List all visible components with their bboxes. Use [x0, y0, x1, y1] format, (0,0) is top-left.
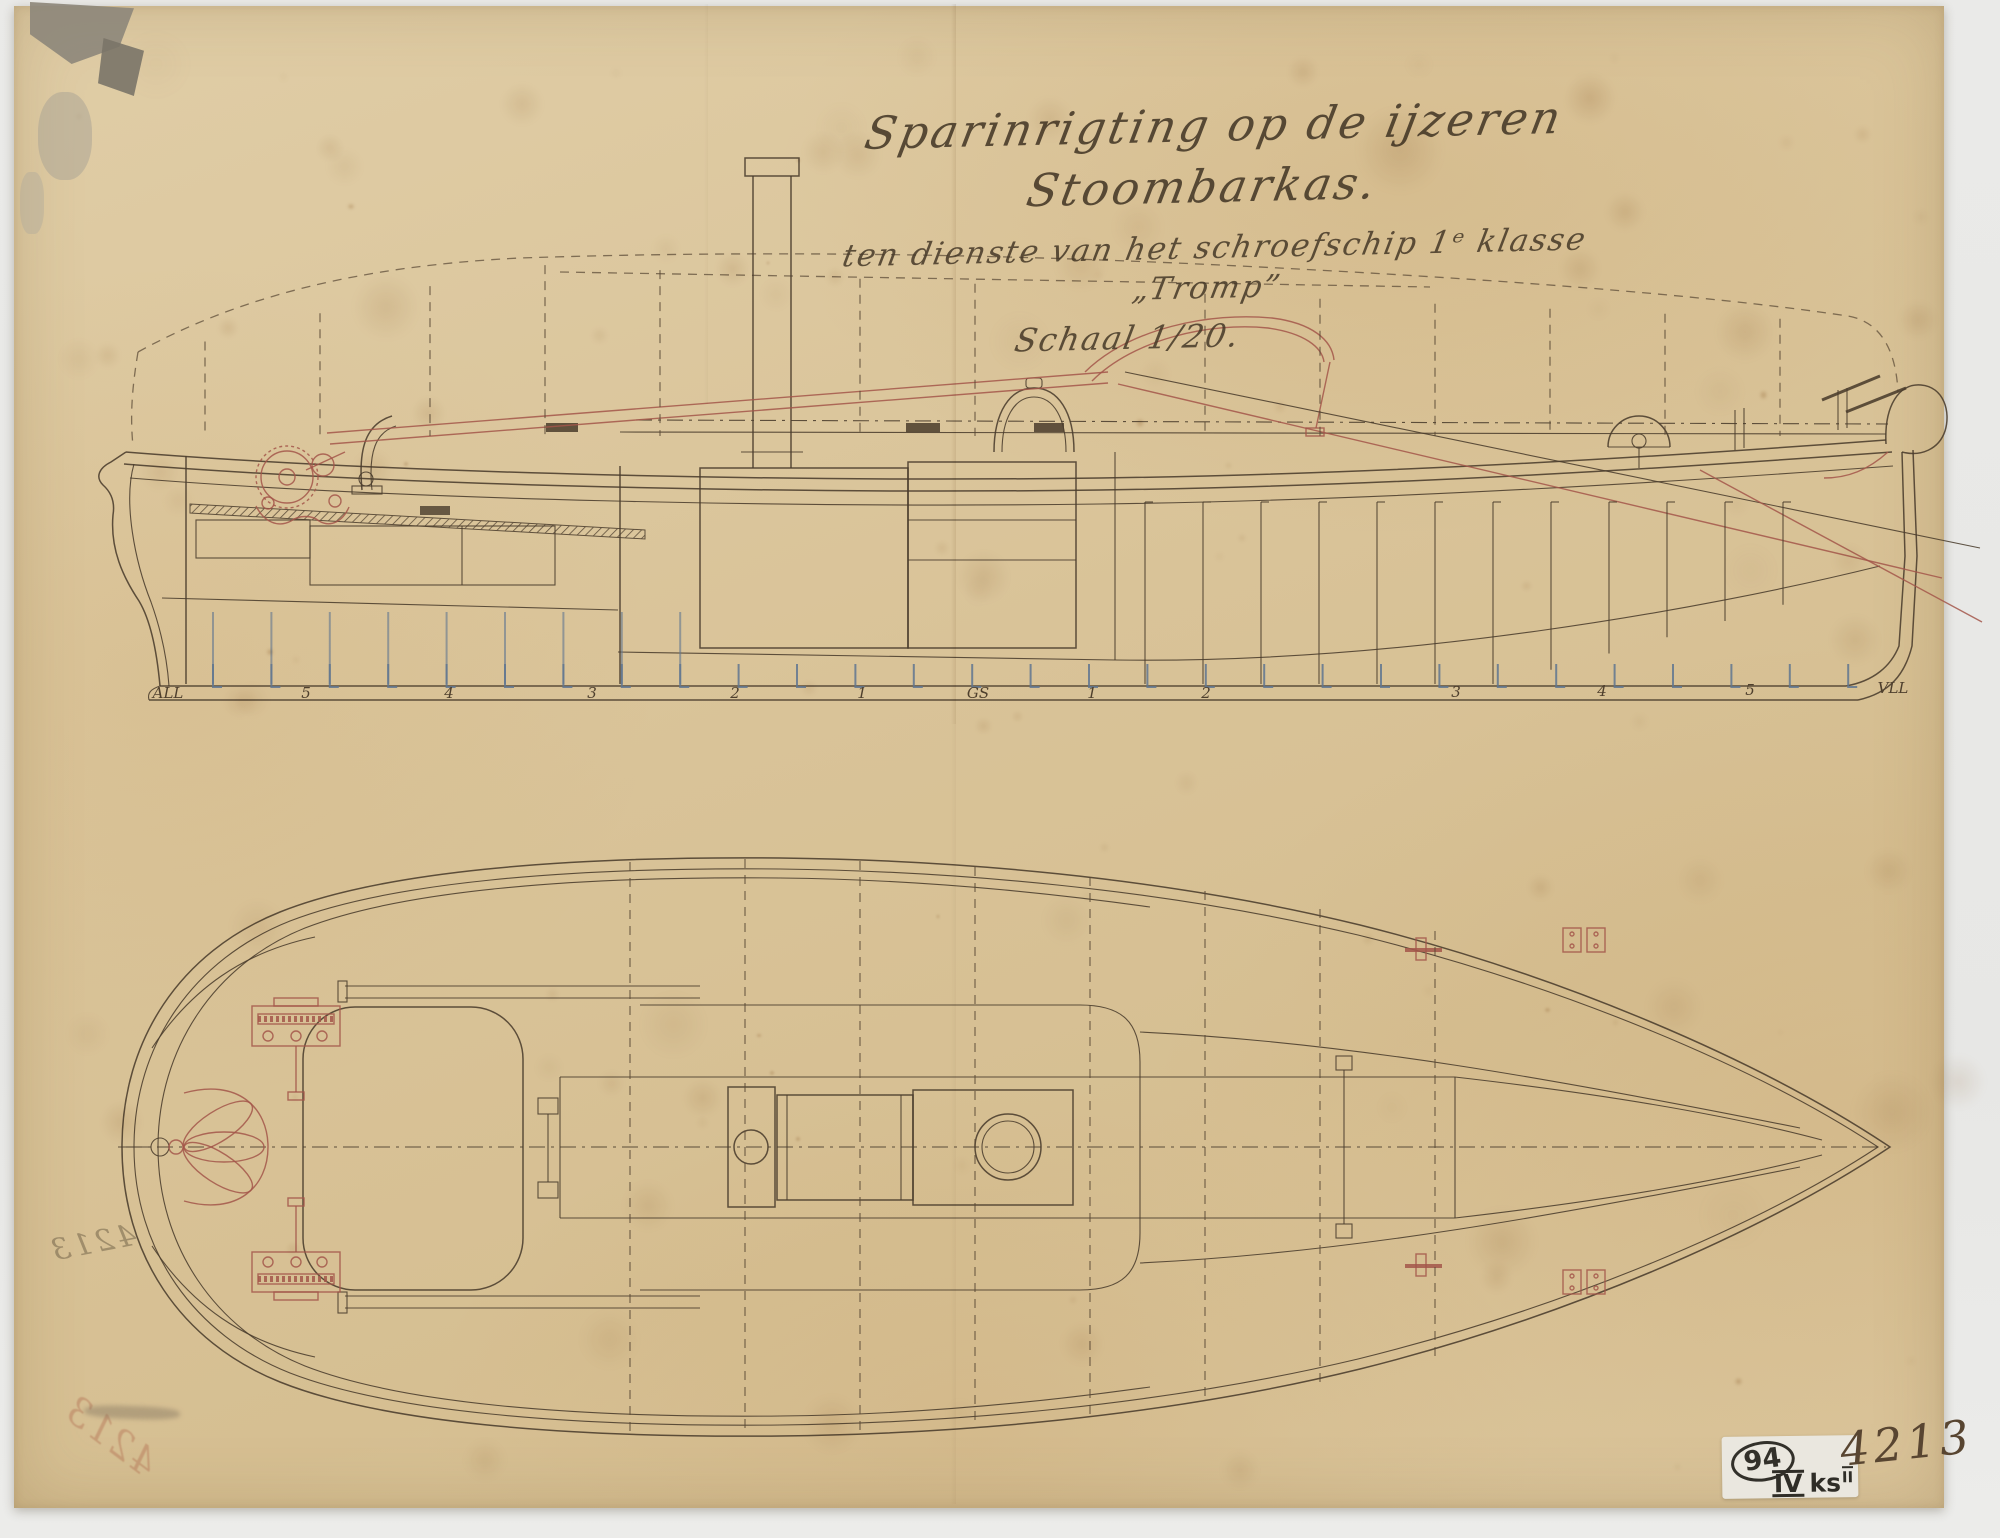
stern-spar	[1125, 372, 1980, 548]
plan-winch-fore	[252, 998, 340, 1100]
archive-classmark: IV ksII	[1772, 1464, 1854, 1497]
station-label: 4	[443, 684, 454, 702]
station-label: 4	[1596, 682, 1607, 700]
station-label: 5	[301, 684, 311, 702]
boiler-casing	[700, 468, 908, 648]
stem-profile	[99, 452, 160, 686]
deck-cleat	[906, 423, 940, 432]
stern-posts	[1735, 376, 1906, 450]
plan-top-view	[118, 858, 1890, 1436]
station-label: 3	[587, 684, 597, 702]
station-label: 2	[1200, 684, 1211, 702]
hull-sheer-line	[126, 440, 1886, 479]
fore-locker	[196, 520, 310, 558]
plan-winch-aft	[252, 1198, 340, 1300]
station-label: 5	[1745, 681, 1755, 699]
station-label: 1	[857, 684, 867, 702]
station-label: GS	[967, 684, 989, 702]
title-block: Sparinrigting op de ijzeren Stoombarkas.…	[757, 86, 1663, 368]
stowed-spar	[327, 372, 1108, 433]
station-label: VLL	[1878, 679, 1909, 697]
station-label: 1	[1087, 684, 1097, 702]
station-label: 2	[729, 684, 740, 702]
fore-cabin	[310, 526, 555, 585]
station-label: 3	[1451, 683, 1461, 701]
drawing-title: Sparinrigting op de ijzeren Stoombarkas.	[747, 86, 1670, 228]
photo-backdrop: 4213 4213 Sparinrigting op de ijzeren St…	[0, 0, 2000, 1538]
fore-hatch	[303, 1007, 523, 1290]
station-labels: ALL54321GS12345VLL	[151, 679, 1909, 702]
deck-cleat	[1034, 423, 1064, 432]
drawing-subtitle: ten dienste van het schroefschip 1ᵉ klas…	[753, 217, 1668, 318]
station-label: ALL	[151, 684, 184, 702]
archive-label: 94 IV ksII	[1722, 1435, 1859, 1499]
stern-sheets	[1886, 385, 1947, 454]
